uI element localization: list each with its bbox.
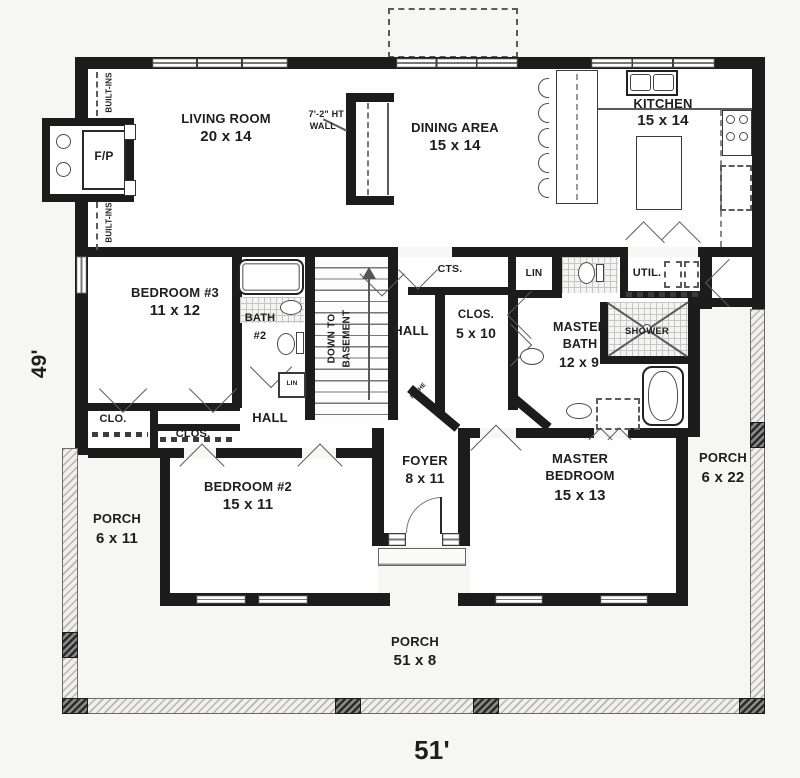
room-label-bedroom3: BEDROOM #3: [116, 286, 234, 301]
built-ins-label: BUILT-INS: [106, 57, 115, 127]
plan-width-dimension: 51': [390, 736, 474, 765]
sink-basin: [653, 74, 674, 91]
porch-front-label: PORCH: [384, 635, 446, 650]
porch-post: [335, 698, 361, 714]
porch-left-label: PORCH: [86, 512, 148, 527]
fireplace-log-circle: [56, 134, 71, 149]
hall-label-mid: HALL: [386, 324, 436, 339]
vanity-sink: [520, 348, 544, 365]
closet-label-clos: CLOS.: [168, 428, 218, 440]
wall-hall-bottom: [216, 448, 302, 458]
wall-closet-left: [435, 295, 445, 413]
room-size-kitchen: 15 x 14: [622, 113, 704, 130]
wall-segment: [452, 247, 628, 257]
stairs-label: DOWN TO: [326, 284, 337, 394]
ht-wall-label: WALL: [286, 121, 336, 131]
half-wall-edge-line: [387, 103, 389, 195]
porch-post: [473, 698, 499, 714]
window: [76, 256, 87, 294]
wall-hall-bottom: [336, 448, 372, 458]
room-size-bedroom2: 15 x 11: [210, 497, 286, 514]
toilet-bowl: [277, 333, 295, 355]
porch-front-size: 51 x 8: [382, 653, 448, 670]
sidelight-window: [388, 533, 406, 546]
dryer-dashed: [684, 261, 699, 288]
half-wall-bar: [346, 93, 356, 205]
closet-rod: [92, 432, 148, 437]
room-size-master: 15 x 13: [540, 488, 620, 505]
refrigerator: [720, 165, 752, 211]
window: [152, 58, 288, 68]
room-label-masterbath2: BATH: [550, 337, 610, 351]
half-wall-cap: [346, 93, 394, 102]
closet-label-5x10: CLOS.: [448, 309, 504, 322]
closet-label-cts: CTS.: [428, 264, 472, 276]
window: [591, 58, 715, 68]
window: [600, 595, 648, 604]
burner: [726, 115, 735, 124]
room-label-bath2: BATH: [234, 312, 286, 324]
burner: [739, 115, 748, 124]
shower-dim-side: 3'2": [688, 308, 695, 328]
porch-railing-bottom: [62, 698, 765, 714]
half-wall-dashed-line: [367, 103, 369, 195]
wall-bedroom2-left: [160, 448, 170, 606]
burner: [726, 132, 735, 141]
stairs-arrow-line: [368, 278, 370, 400]
shower-label: SHOWER: [616, 327, 678, 338]
sink-basin: [630, 74, 651, 91]
sidelight-window: [442, 533, 460, 546]
porch-post: [750, 422, 765, 448]
washer-dashed: [664, 261, 682, 288]
kitchen-island: [636, 136, 682, 210]
fireplace-log-circle: [56, 162, 71, 177]
wall-shower-bottom: [600, 356, 696, 364]
hall-label-lower: HALL: [244, 411, 296, 426]
room-label-foyer: FOYER: [394, 454, 456, 469]
kitchen-bar-dash: [576, 74, 578, 200]
porch-right-size: 6 x 22: [688, 470, 758, 487]
room-label-kitchen: KITCHEN: [618, 97, 708, 112]
room-label-master2: BEDROOM: [532, 469, 628, 484]
wall-cts-lin-divider: [508, 247, 516, 295]
porch-railing-right: [750, 309, 765, 714]
wall-master-bottom: [458, 593, 688, 606]
burner: [739, 132, 748, 141]
room-label-masterbath: MASTER: [542, 320, 618, 334]
half-wall-cap: [346, 196, 394, 205]
front-step: [378, 548, 466, 566]
wall-foyer-front: [372, 533, 388, 546]
room-size-dining: 15 x 14: [418, 138, 492, 155]
wall-foyer-left: [372, 428, 384, 546]
floor-plan: F/P BUILT-INS BUILT-INS 7'-2" HT WALL LI…: [0, 0, 800, 778]
linen-label: LIN: [281, 380, 303, 387]
wall-master-top: [470, 428, 480, 438]
room-number-bath2: #2: [244, 330, 276, 342]
vanity-dashed: [596, 398, 640, 430]
wall-right: [752, 57, 765, 309]
fireplace-return: [124, 124, 136, 140]
porch-post: [739, 698, 765, 714]
wall-cts-bottom: [408, 287, 516, 295]
room-size-masterbath: 12 x 9: [546, 355, 612, 371]
wall-segment: [88, 247, 398, 257]
toilet-tank: [596, 264, 604, 282]
room-label-dining: DINING AREA: [400, 121, 510, 136]
window: [196, 595, 246, 604]
window: [396, 58, 518, 68]
built-ins-line: [96, 202, 98, 250]
front-door-leaf: [440, 497, 442, 534]
stairs-label: BASEMENT: [341, 284, 352, 394]
room-label-bedroom2: BEDROOM #2: [188, 480, 308, 495]
porch-left-size: 6 x 11: [82, 531, 152, 548]
wall-foyer-right: [458, 428, 470, 546]
room-size-living: 20 x 14: [186, 129, 266, 146]
toilet-tank: [296, 332, 304, 354]
fireplace-return: [124, 180, 136, 196]
bathtub: [238, 259, 304, 295]
room-label-living: LIVING ROOM: [166, 112, 286, 127]
built-ins-line: [96, 72, 98, 116]
wall-master-top: [516, 428, 594, 438]
window: [495, 595, 543, 604]
closet-rod: [626, 292, 698, 297]
porch-post: [62, 698, 88, 714]
wall-bath2-right: [305, 257, 315, 420]
fireplace-label: F/P: [84, 150, 124, 163]
porch-post: [62, 632, 78, 658]
porch-railing-left: [62, 448, 78, 714]
wall-master-east: [676, 428, 688, 606]
toilet-bowl: [578, 262, 595, 284]
room-size-bedroom3: 11 x 12: [138, 303, 212, 320]
built-ins-label: BUILT-INS: [106, 187, 115, 257]
porch-right-label: PORCH: [692, 451, 754, 466]
room-size-foyer: 8 x 11: [396, 471, 454, 487]
master-bathtub-inner: [648, 371, 678, 421]
linen-label-hall: LIN: [516, 268, 552, 279]
chimney-outline: [388, 8, 518, 58]
vanity-sink: [566, 403, 592, 419]
closet-label-clo: CLO.: [92, 413, 134, 425]
window: [258, 595, 308, 604]
ht-wall-label: 7'-2" HT: [286, 109, 344, 119]
room-label-master: MASTER: [542, 452, 618, 467]
wall-segment: [698, 247, 752, 257]
plan-height-dimension: 49': [28, 336, 52, 392]
